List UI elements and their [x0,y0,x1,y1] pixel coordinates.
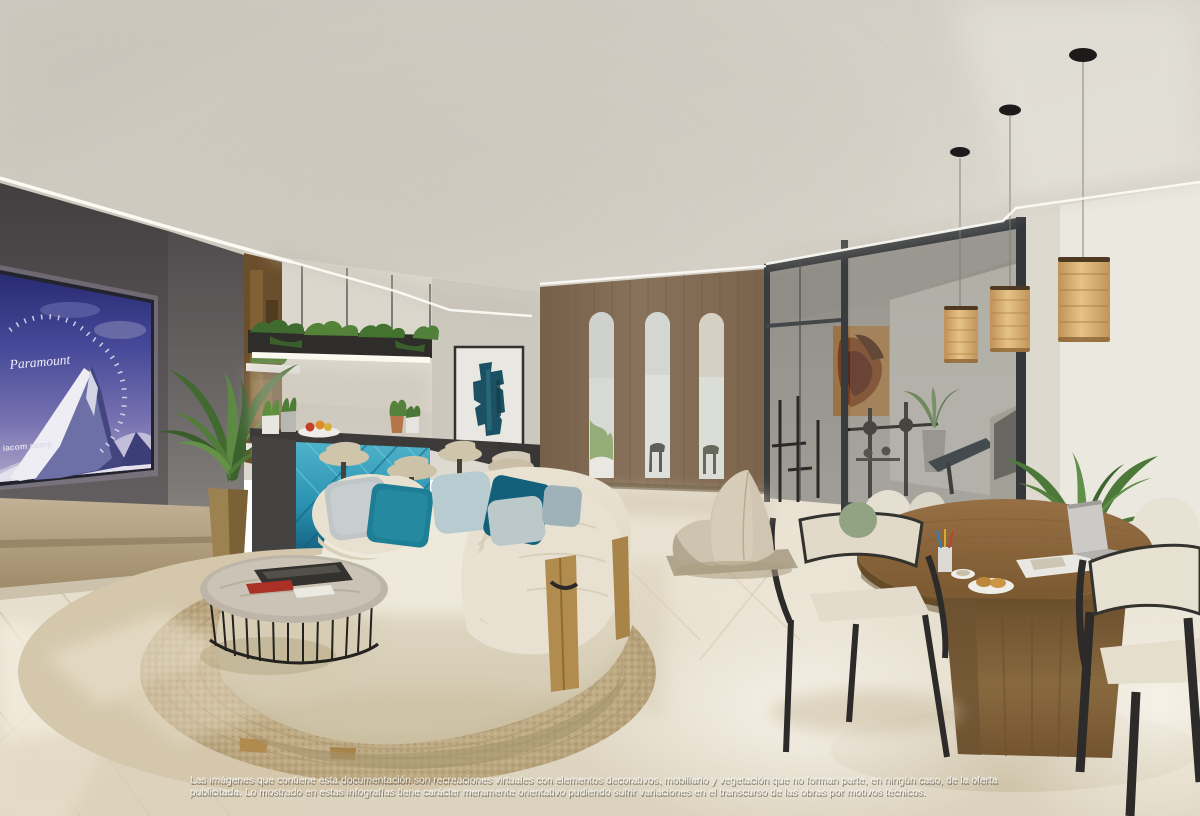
svg-text:Las imágenes que contiene esta: Las imágenes que contiene esta documenta… [190,775,998,786]
svg-text:publicitada. Lo mostrado en es: publicitada. Lo mostrado en estas infogr… [190,787,926,798]
